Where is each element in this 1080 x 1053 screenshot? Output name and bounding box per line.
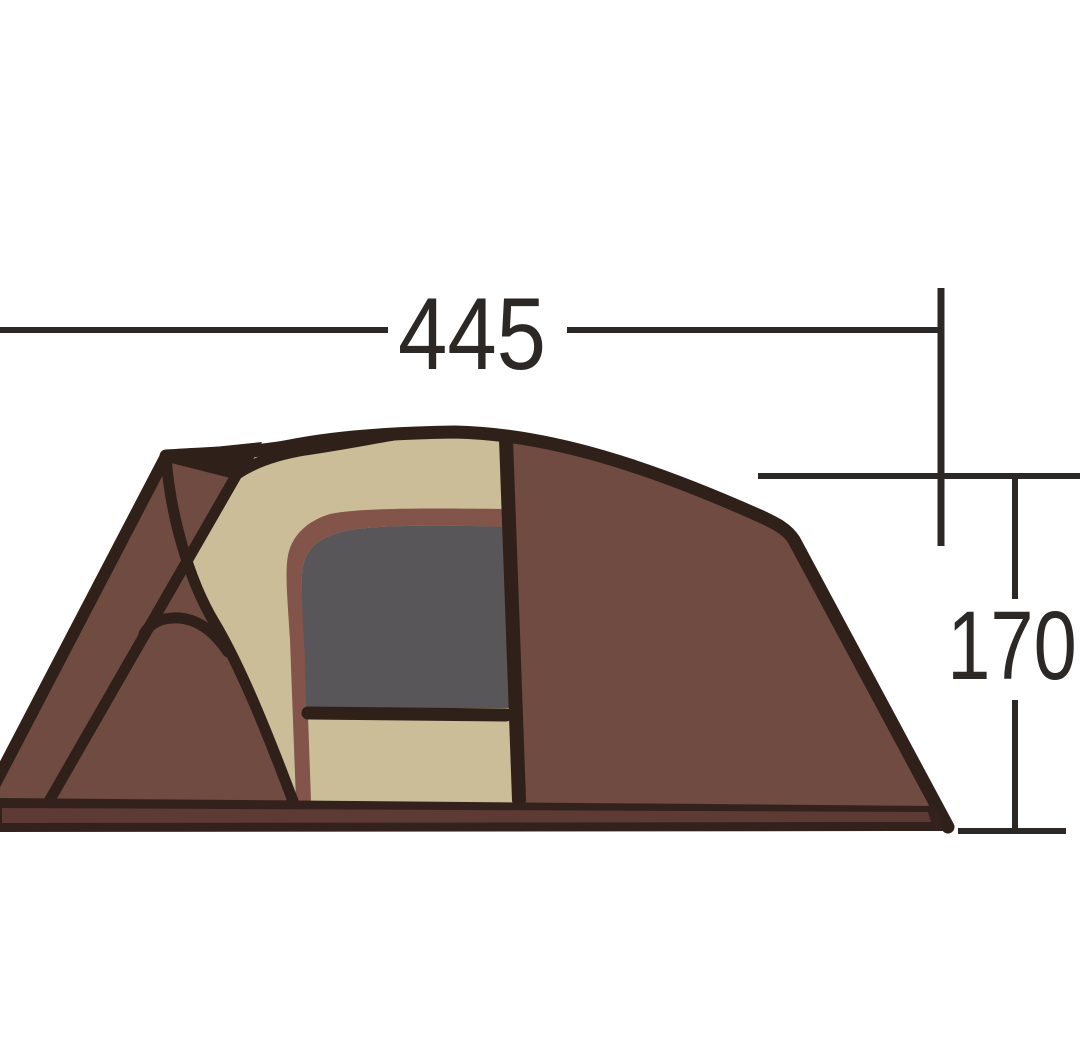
svg-text:170: 170 (947, 591, 1076, 700)
svg-text:445: 445 (398, 277, 546, 391)
